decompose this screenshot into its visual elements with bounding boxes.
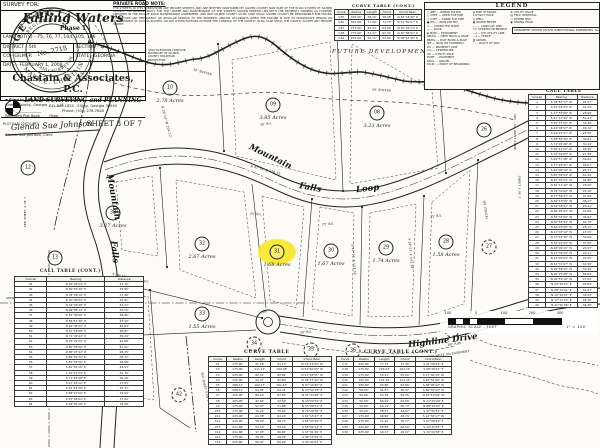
lot-number-circle: 29 <box>379 241 394 256</box>
table-cell: C30 <box>337 429 354 434</box>
table-row: 15S 85°36'54" W41.29' <box>529 173 598 178</box>
table-cell: N 63°18'40" E <box>394 15 422 20</box>
table-row: 18N 78°33'02" W45.18' <box>529 188 598 193</box>
table-row: 10S 66°41'52" W44.95' <box>529 147 598 152</box>
table-row: 23N 55°31'09" W35.02' <box>529 214 598 219</box>
lot-number-circle: 26 <box>477 123 492 138</box>
scale-segment <box>533 319 561 324</box>
bearing-label: 25' B/L <box>322 222 334 227</box>
curve-table-title: CURVE TABLE <box>244 349 290 355</box>
bearing-label: IPF <box>262 310 267 314</box>
road-name-label: Falls <box>108 240 120 263</box>
scale-tick-label: 200 <box>529 311 536 315</box>
table-cell: N 08°15'36" E <box>394 36 422 41</box>
table-cell: 34.40' <box>577 303 597 308</box>
table-row: 28N 32°41'50" W37.84' <box>529 240 598 245</box>
scale-segment <box>449 319 456 324</box>
curve-table-top-title: CURVE TABLE (CONT.) <box>352 3 415 8</box>
scale-tick-label: 300 <box>557 311 564 315</box>
legend-symbols: ⊗ UTILITY VALVE▤ TELE. PEDESTAL□ POWER B… <box>510 11 600 25</box>
table-row: 38N 12°44'47" E39.53' <box>529 292 598 297</box>
bearing-label: 20' B/L <box>300 330 312 335</box>
scale-segment <box>470 319 477 324</box>
table-row: 37N 08°12'01" E31.27' <box>529 287 598 292</box>
filing-block: ▪ Filed in office Clerk of Superior Cour… <box>5 97 123 138</box>
curve-table-cont: CurveRadiusLengthChordChord Bear.C17225.… <box>336 356 452 435</box>
table-cell: 275.00' <box>348 25 364 30</box>
table-row: C16225.00'60.47'60.29'S 30°44'03" E <box>209 440 332 445</box>
table-cell: 225.00' <box>354 429 375 434</box>
call-table-cont-title: CALL TABLE (CONT.) <box>40 268 101 273</box>
table-row: 24N 50°53'34" W40.78' <box>529 219 598 224</box>
lot-acreage: 1.68 Acres <box>263 262 290 268</box>
lot-number-circle: 33 <box>195 307 210 322</box>
table-cell: 225.00' <box>227 440 249 445</box>
table-cell: C16 <box>209 440 227 445</box>
legend-item: ◉ SPRING HEAD <box>510 21 600 24</box>
private-road-note: PRIVATE ROAD NOTE: THE STREETS IN THIS S… <box>113 2 332 26</box>
table-row: 13S 77°24'31" W48.07' <box>529 162 598 167</box>
table-cell: S 30°44'03" E <box>293 440 332 445</box>
lot-acreage: 2.67 Acres <box>188 254 215 260</box>
table-cell: 60.29' <box>271 440 293 445</box>
contour-note: 3300' ELEVATION CONTOUR, BOUNDARY OF GIL… <box>148 49 190 62</box>
bearing-label: SPC - GA WEST ZONE <box>513 114 517 150</box>
legend-column: ◍ FIRE HYDRANTø UTILITY POLE◎ WELL▣ WATE… <box>473 11 508 67</box>
scale-ratio: 1" = 100' <box>566 325 587 329</box>
seal-number: No. 2718 <box>37 44 68 58</box>
scale-caption: GRAPHIC SCALE - FEET <box>448 325 497 329</box>
lot-number-circle: 28 <box>439 235 454 250</box>
scale-tick-label: 100 <box>445 311 452 315</box>
lot-acreage: 3.85 Acres <box>259 115 286 121</box>
legend-column: ⊗ UTILITY VALVE▤ TELE. PEDESTAL□ POWER B… <box>510 11 600 67</box>
legend-item: P.O.B. — POINT OF BEGINNING <box>427 63 470 66</box>
legend: LEGEND ○ RBF — REBAR FOUND○ OTPF — OPEN … <box>424 2 600 90</box>
table-row: 19N 73°59'37" W31.94' <box>529 193 598 198</box>
graphic-scale: 1000100200300 GRAPHIC SCALE - FEET 1" = … <box>440 311 598 333</box>
seal-state: GEORGIA <box>7 3 78 44</box>
curve-table-top: CurveRadiusLengthChordChord Bear.C45325.… <box>334 9 422 41</box>
table-row: 33N 09°58'32" W30.46' <box>529 266 598 271</box>
legend-column: ○ RBF — REBAR FOUND○ OTPF — OPEN TOP PIP… <box>427 11 470 67</box>
scale-segment <box>505 319 533 324</box>
clerk-signature: Glenda Sue Johnson <box>5 117 99 135</box>
scale-segment <box>477 319 505 324</box>
table-cell: S 49°05'28" E <box>47 401 105 406</box>
lot-acreage: 3.27 Acres <box>99 223 126 229</box>
table-row: 64S 49°05'28" E33.58' <box>15 401 144 406</box>
scale-tick-label: 100 <box>501 311 508 315</box>
lot-number-circle: 13 <box>48 251 63 266</box>
lot-number-circle: 32 <box>195 237 210 252</box>
plat-sheet: GEORGIA REGISTERED No. 2718 LAND SURVEYO… <box>0 0 600 448</box>
table-cell: 225.00' <box>348 36 364 41</box>
lot-acreage: 1.74 Acres <box>372 258 399 264</box>
table-row: 29N 28°09'15" W26.97' <box>529 245 598 250</box>
legend-note: MONUMENT SHOWN ON R/W SUBDIVISIONAL DIME… <box>512 27 600 34</box>
table-cell: 275.00' <box>348 30 364 35</box>
future-development-label: FUTURE DEVELOPMENT <box>332 49 432 55</box>
scale-segment <box>463 319 470 324</box>
table-row: 40N 21°50'08" E34.40' <box>529 303 598 308</box>
call-table-cont: CourseBearingDistance41N 26°22'54" E41.1… <box>14 276 144 407</box>
bearing-label: SHEET 3 OF 7 <box>517 176 521 199</box>
curve-table-cont-title: CURVE TABLE (CONT.) <box>364 349 438 355</box>
lot-acreage: 1.55 Acres <box>188 324 215 330</box>
lot-number-circle: 10 <box>163 81 178 96</box>
table-cell: N 20°08'51" E <box>394 30 422 35</box>
lot-acreage: 1.58 Acres <box>432 252 459 258</box>
lot-number-circle: 09 <box>266 98 281 113</box>
legend-item: – – – RIGHT OF WAY <box>473 42 508 45</box>
table-row: C30225.00'49.17'49.07'S 34°29'38" E <box>337 429 452 434</box>
table-cell: 49.17' <box>374 429 395 434</box>
bearing-label: SEE SHEET 4 OF 7 <box>23 197 27 227</box>
table-row: 32N 14°31'07" W42.58' <box>529 261 598 266</box>
svg-text:GEORGIA: GEORGIA <box>7 3 78 44</box>
private-road-note-body: THE STREETS IN THIS SUBDIVISION ARE PRIV… <box>113 7 332 26</box>
table-cell: N 51°50'27" E <box>394 20 422 25</box>
table-row: 20N 69°16'55" W38.27' <box>529 199 598 204</box>
lot-acreage: 3.23 Acres <box>363 123 390 129</box>
table-cell: 49.07' <box>395 429 416 434</box>
table-row: 14S 81°08'16" W25.73' <box>529 167 598 172</box>
table-cell: 54.71' <box>364 36 379 41</box>
lot-number-circle: 30 <box>324 244 339 259</box>
call-table: CourseBearingDistance1S 38°42'17" W35.67… <box>528 94 598 308</box>
table-cell: 40 <box>529 303 546 308</box>
table-cell: 64 <box>15 401 47 406</box>
curve-table: CurveRadiusLengthChordChord Bear.C1175.0… <box>208 356 332 445</box>
table-row: 39N 17°17'23" E28.76' <box>529 297 598 302</box>
table-cell: N 35°26'13" E <box>394 25 422 30</box>
legend-title: LEGEND <box>425 3 599 10</box>
lot-number-circle: 31 <box>270 245 285 260</box>
table-cell: 33.58' <box>105 401 144 406</box>
table-cell: S 34°29'38" E <box>415 429 451 434</box>
lot-acreage: 1.67 Acres <box>317 261 344 267</box>
table-cell: N 21°50'08" E <box>545 303 577 308</box>
table-row: 34N 05°25'46" W36.09' <box>529 271 598 276</box>
lot-number-circle: 12 <box>21 161 36 176</box>
scale-segment <box>456 319 463 324</box>
scale-tick-label: 0 <box>475 311 477 315</box>
table-row: C49225.00'54.71'54.60'N 08°15'36" E <box>335 36 422 41</box>
table-cell: 60.47' <box>249 440 271 445</box>
lot-number-circle: 08 <box>370 106 385 121</box>
lot-acreage: 2.78 Acres <box>156 98 183 104</box>
table-cell: C49 <box>335 36 349 41</box>
lot-number-circle: 42 <box>172 388 187 403</box>
scale-bar <box>448 318 562 325</box>
lot-number-circle: 27 <box>482 240 497 255</box>
table-cell: 54.60' <box>380 36 394 41</box>
